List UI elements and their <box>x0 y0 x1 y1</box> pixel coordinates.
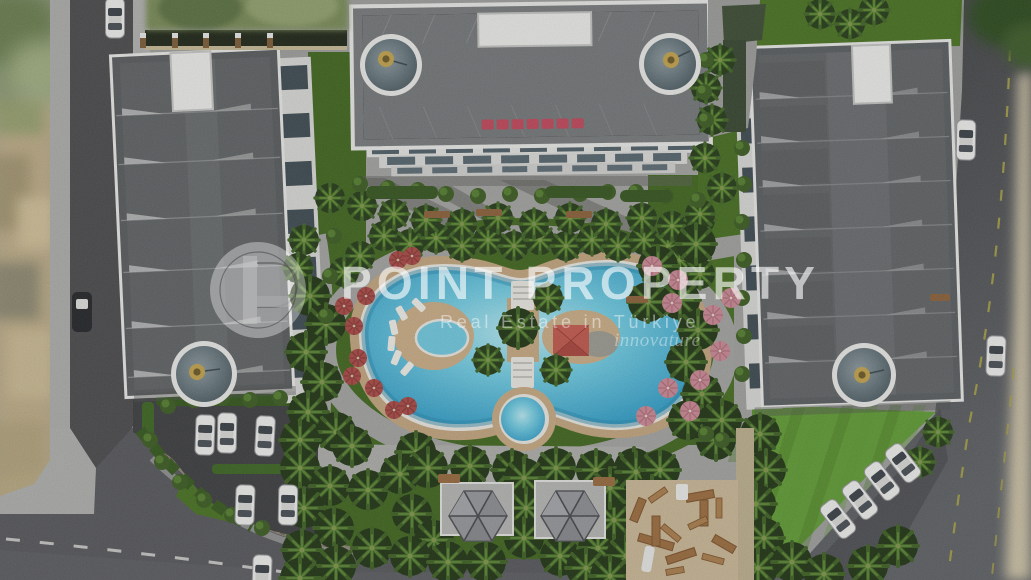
svg-text:innovature: innovature <box>614 330 701 351</box>
svg-text:POINT PROPERTY: POINT PROPERTY <box>341 257 820 309</box>
svg-text:Real Estate in Türkiye: Real Estate in Türkiye <box>440 312 699 332</box>
